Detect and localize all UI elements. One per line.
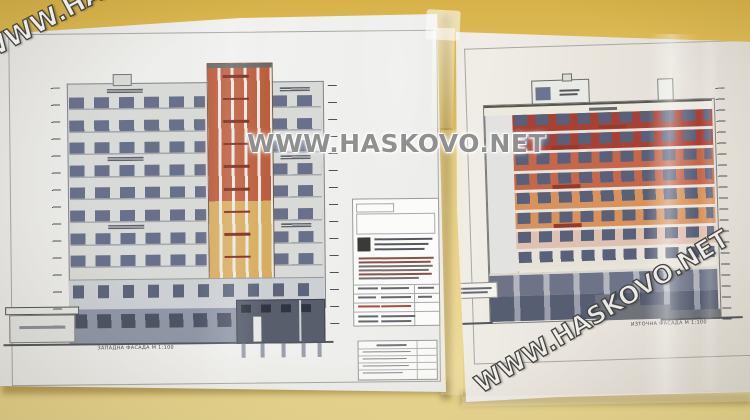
tower-floor-label: [223, 97, 249, 100]
window-row: [70, 187, 206, 199]
project-text-line: [359, 265, 433, 268]
row-label: [358, 315, 378, 317]
tower-floor-label: [224, 210, 250, 213]
window-row: [274, 253, 323, 265]
rule: [414, 284, 415, 325]
window-row: [273, 231, 322, 243]
window-row: [273, 208, 322, 220]
rooftop-window: [535, 87, 550, 100]
firm-text-line: [374, 243, 428, 246]
tower-floor-label: [223, 142, 249, 145]
rule: [354, 284, 439, 286]
window-row: [272, 95, 321, 107]
pier: [241, 342, 245, 358]
level-ticks-right: [328, 85, 340, 331]
floor-note-label: [108, 157, 144, 161]
basement-block: [236, 299, 325, 344]
row-value: [381, 320, 411, 322]
rule: [359, 362, 437, 364]
table-row-text: [363, 365, 409, 367]
photo-of-architectural-drawings: ЗАПАДНА ФАСАДА М 1:100: [0, 0, 750, 420]
row-number: [418, 296, 432, 298]
rule: [354, 311, 439, 313]
rooftop-vent: [562, 73, 572, 81]
tower-cap: [208, 63, 272, 68]
tower-mullions: [208, 63, 275, 309]
tape-strip: [431, 28, 455, 128]
annotation-text: [461, 287, 492, 290]
row-red-value: [381, 305, 411, 308]
window-row: [69, 96, 205, 108]
floor-note-label: [108, 224, 144, 228]
rule: [354, 302, 439, 304]
mezzanine-windows: [73, 283, 320, 299]
level-ticks-left: [51, 88, 62, 326]
window-row: [273, 185, 322, 197]
row-value: [381, 296, 411, 298]
annotation-text: [461, 291, 488, 293]
rule: [359, 348, 437, 350]
west-facade-caption: ЗАПАДНА ФАСАДА М 1:100: [98, 344, 174, 351]
project-text-line: [359, 261, 431, 264]
basement-door: [253, 317, 261, 343]
tower-floor-label: [225, 255, 251, 258]
rooftop-label: [559, 89, 579, 92]
annex: [9, 315, 75, 344]
floor-note-label: [107, 89, 143, 93]
rooftop-label: [560, 93, 578, 96]
pier: [260, 342, 264, 358]
row-label: [358, 287, 378, 289]
rule: [416, 341, 417, 379]
row-scale: [418, 287, 434, 289]
window-row: [272, 118, 321, 130]
row-label: [358, 320, 378, 322]
window-row: [71, 254, 207, 266]
ground-windows: [73, 313, 234, 329]
tower-floor-label: [224, 233, 250, 236]
table-row-text: [363, 358, 407, 360]
window-row: [69, 119, 205, 131]
rule: [359, 369, 437, 371]
firm-text-line: [374, 238, 432, 241]
project-text-line: [359, 257, 434, 260]
firm-logo: [357, 237, 370, 251]
window-row: [273, 163, 322, 175]
project-text-line: [359, 277, 419, 279]
floor-note-label: [281, 223, 311, 227]
roof-chimney: [113, 74, 132, 86]
firm-text-line: [375, 248, 425, 251]
table-row-text: [363, 372, 403, 374]
row-value: [381, 315, 415, 317]
rule: [359, 355, 437, 357]
tower-floor-label: [223, 120, 249, 123]
row-label: [358, 296, 376, 298]
title-block: [352, 198, 440, 327]
pier: [281, 341, 285, 357]
pier: [301, 341, 305, 357]
watermark-center: WWW.HASKOVO.NET: [247, 129, 546, 158]
project-text-line: [359, 273, 432, 276]
tape-sheen-lower: [441, 130, 463, 395]
tower-floor-label: [223, 75, 249, 78]
tower-floor-label: [224, 165, 250, 168]
row-red-label: [358, 305, 380, 307]
window-row: [70, 164, 206, 176]
annex-label: [19, 326, 65, 329]
rule: [354, 293, 439, 295]
basement-joint: [299, 300, 301, 342]
project-text-line: [359, 269, 429, 272]
window-row: [69, 141, 205, 153]
ground-floor: [69, 308, 236, 344]
basement-windows: [241, 304, 320, 313]
table-row-text: [363, 351, 411, 353]
table-header-text: [377, 344, 407, 346]
window-row: [70, 232, 206, 244]
title-empty-cell: [356, 213, 435, 235]
title-note-cell: [356, 203, 394, 212]
window-row: [70, 209, 206, 221]
revision-table: [357, 340, 437, 381]
floor-note-label: [280, 87, 310, 91]
tower-floor-label: [224, 188, 250, 191]
pier: [317, 341, 321, 357]
row-value: [381, 287, 409, 289]
